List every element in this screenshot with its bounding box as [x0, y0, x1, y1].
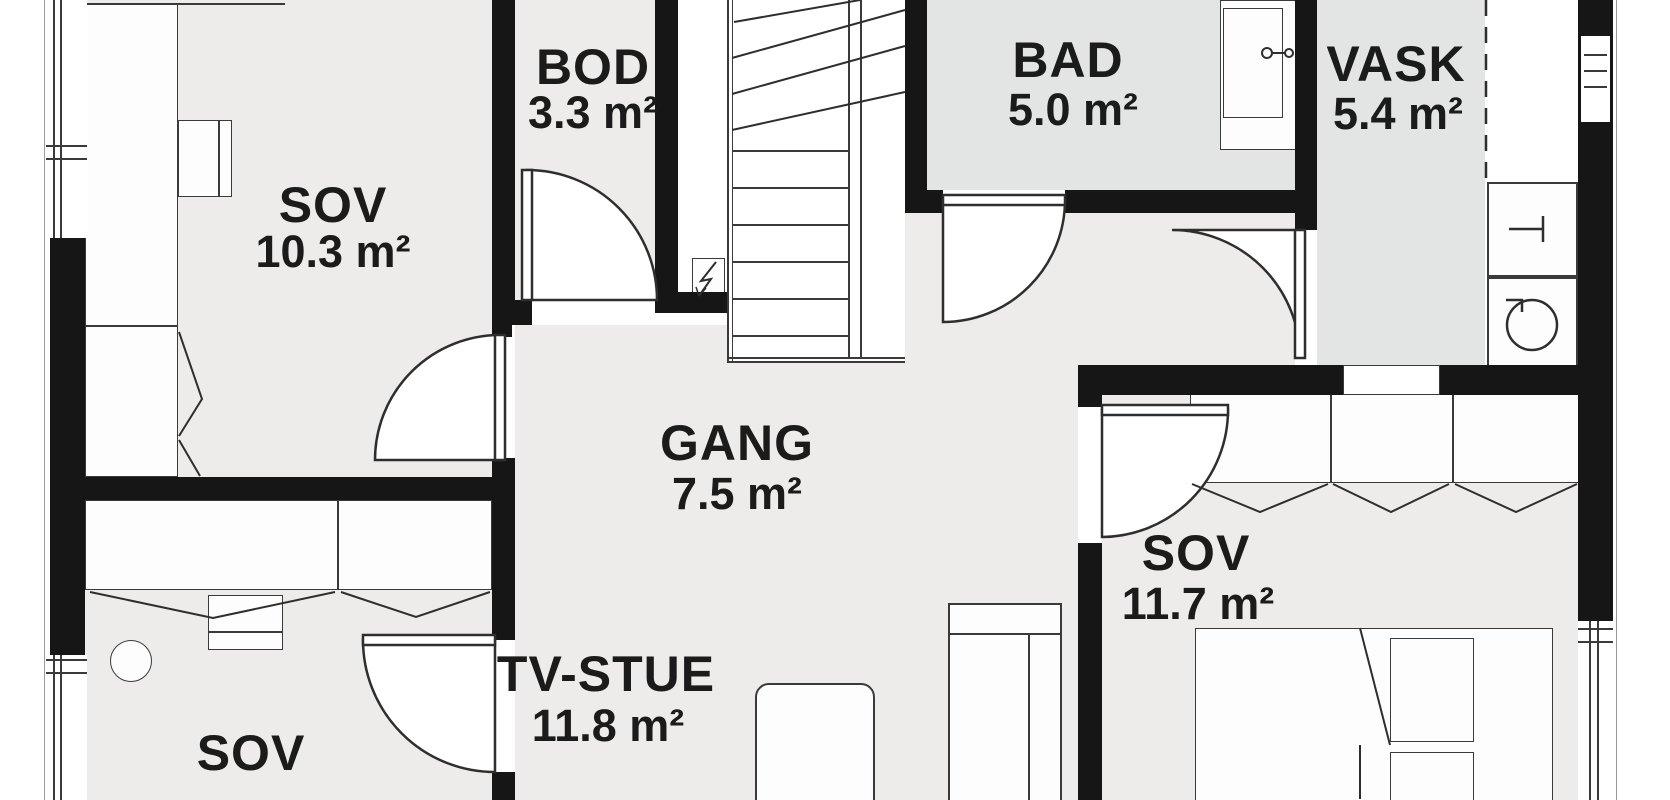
wardrobe-chevron-sov2 [1455, 484, 1577, 512]
bed-duvet-fold [1360, 628, 1390, 745]
stair-winder [734, 0, 860, 22]
wardrobe-chevron-sov3 [341, 592, 490, 617]
room-name-tvstue: TV-STUE [497, 645, 715, 703]
room-area-vask: 5.4 m² [1333, 88, 1463, 140]
door-swing-bad [943, 200, 1065, 322]
washing-machine-icon [1506, 300, 1557, 350]
wardrobe-chevron-sov2 [1192, 484, 1328, 512]
door-leaf-bad [943, 195, 1065, 205]
door-swing-vask [1172, 230, 1300, 358]
room-area-bod: 3.3 m² [528, 87, 658, 139]
room-area-tvstue: 11.8 m² [532, 700, 685, 752]
door-swing-bod [527, 170, 657, 300]
room-area-gang: 7.5 m² [672, 468, 802, 520]
door-leaf-vask [1295, 230, 1305, 358]
stair-winder [732, 92, 905, 130]
room-name-bad: BAD [1012, 31, 1123, 89]
wardrobe-chevron-sov2 [1333, 484, 1449, 512]
wardrobe-chevron-sov1 [179, 332, 202, 436]
door-leaf-bod [522, 170, 532, 300]
door-leaf-sov3 [363, 635, 495, 645]
door-swing-sov2 [1102, 410, 1228, 537]
door-swing-sov1 [375, 335, 500, 460]
stair-winder [732, 46, 905, 94]
electrical-panel-icon [696, 262, 716, 296]
wardrobe-chevron-sov1 [179, 440, 200, 476]
dryer-icon [1509, 216, 1543, 242]
room-area-sov1: 10.3 m² [255, 226, 410, 278]
room-area-bad: 5.0 m² [1008, 84, 1138, 136]
room-name-vask: VASK [1326, 35, 1465, 93]
wardrobe-chevron-sov3 [90, 592, 335, 618]
floor-plan: SOV 10.3 m² BOD 3.3 m² BAD 5.0 m² VASK 5… [0, 0, 1670, 800]
room-name-gang: GANG [660, 414, 814, 472]
door-leaf-sov2 [1102, 405, 1228, 415]
door-leaf-sov1 [495, 335, 505, 460]
shower-mixer-icon [1262, 48, 1293, 58]
room-name-sov3: SOV [197, 724, 306, 782]
room-area-sov2: 11.7 m² [1122, 578, 1275, 630]
room-name-sov2: SOV [1142, 524, 1251, 582]
door-swing-sov3 [363, 640, 495, 772]
